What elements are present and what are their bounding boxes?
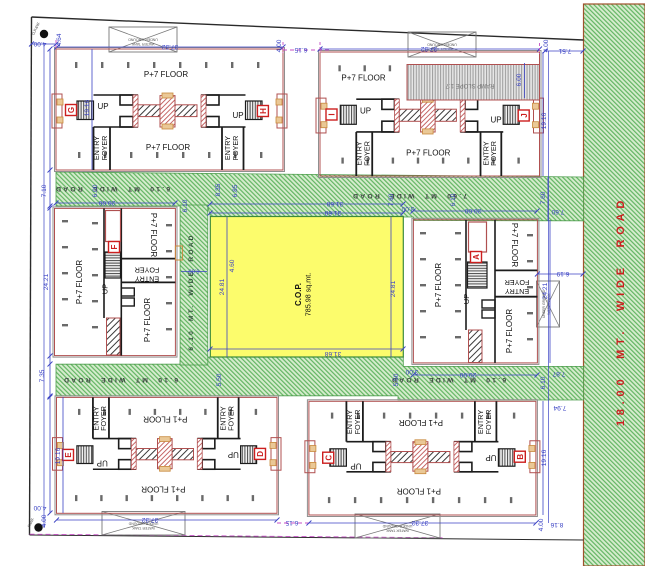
svg-text:6.10 MT WIDE ROAD: 6.10 MT WIDE ROAD: [62, 376, 178, 383]
svg-text:19.16: 19.16: [55, 447, 62, 464]
svg-text:FOYER: FOYER: [231, 136, 240, 161]
svg-text:UP: UP: [97, 459, 108, 468]
svg-text:37.32: 37.32: [161, 43, 178, 50]
svg-text:WATER TANK: WATER TANK: [385, 529, 408, 533]
svg-text:24.21: 24.21: [43, 273, 50, 290]
svg-text:31.68: 31.68: [326, 200, 343, 207]
svg-text:P+1 FLOOR: P+1 FLOOR: [399, 418, 443, 427]
svg-text:4.60: 4.60: [229, 259, 236, 272]
svg-text:C: C: [324, 455, 333, 461]
svg-text:8.35: 8.35: [215, 183, 222, 196]
svg-text:ENTRY: ENTRY: [135, 275, 159, 284]
svg-text:P+7 FLOOR: P+7 FLOOR: [406, 149, 450, 158]
svg-text:785.98 sq.mt.: 785.98 sq.mt.: [304, 273, 313, 317]
svg-text:J: J: [520, 113, 529, 117]
svg-text:37.32: 37.32: [141, 516, 158, 523]
svg-text:6.00: 6.00: [92, 184, 99, 197]
svg-text:P+7 FLOOR: P+7 FLOOR: [143, 298, 152, 342]
svg-text:7.10: 7.10: [41, 184, 48, 197]
svg-text:P+7 FLOOR: P+7 FLOOR: [434, 263, 443, 307]
svg-text:WATER TANK: WATER TANK: [131, 526, 154, 530]
svg-text:18.00 MT. WIDE ROAD: 18.00 MT. WIDE ROAD: [615, 196, 627, 426]
svg-text:FOYER: FOYER: [135, 266, 160, 275]
svg-text:FOYER: FOYER: [100, 136, 109, 161]
svg-text:20.00: 20.00: [459, 371, 476, 378]
svg-text:P+7 FLOOR: P+7 FLOOR: [144, 70, 188, 79]
svg-text:4.00: 4.00: [33, 504, 46, 511]
svg-text:UP: UP: [360, 106, 371, 115]
svg-text:P+7 FLOOR: P+7 FLOOR: [341, 74, 385, 83]
svg-text:UNDER GROUND: UNDER GROUND: [128, 38, 158, 42]
svg-text:6.85: 6.85: [232, 184, 239, 197]
svg-text:31.68: 31.68: [324, 209, 341, 216]
svg-text:D: D: [256, 451, 265, 457]
svg-text:4.00: 4.00: [276, 39, 283, 52]
svg-text:8.16: 8.16: [550, 521, 563, 528]
svg-text:4.64: 4.64: [56, 33, 63, 46]
svg-text:6.15: 6.15: [294, 46, 307, 53]
svg-text:F: F: [110, 244, 119, 249]
svg-text:P+7 FLOOR: P+7 FLOOR: [510, 223, 519, 267]
svg-text:7.87: 7.87: [552, 370, 565, 377]
svg-text:24.21: 24.21: [542, 282, 549, 299]
svg-text:5.50: 5.50: [216, 373, 223, 386]
svg-text:UP: UP: [97, 102, 108, 111]
svg-text:UP: UP: [232, 111, 243, 120]
svg-text:6.00: 6.00: [516, 73, 523, 86]
svg-text:FOYER: FOYER: [489, 141, 498, 166]
svg-text:FOYER: FOYER: [99, 406, 108, 431]
svg-text:UP: UP: [490, 116, 501, 125]
svg-text:4.00: 4.00: [41, 514, 48, 527]
svg-text:B: B: [516, 454, 525, 460]
svg-text:FOYER: FOYER: [353, 410, 362, 435]
svg-text:FOYER: FOYER: [362, 141, 371, 166]
svg-text:19.16: 19.16: [84, 99, 91, 116]
svg-text:6.10: 6.10: [540, 376, 547, 389]
svg-text:7.60: 7.60: [388, 193, 395, 206]
svg-text:H: H: [259, 108, 268, 114]
svg-text:6.10 MT WIDE ROAD: 6.10 MT WIDE ROAD: [54, 185, 170, 192]
svg-text:UP: UP: [101, 284, 110, 294]
svg-text:FOYER: FOYER: [505, 278, 530, 287]
svg-text:G: G: [67, 107, 76, 113]
svg-text:WATER TANK: WATER TANK: [131, 42, 154, 46]
svg-text:P+1 FLOOR: P+1 FLOOR: [141, 484, 185, 493]
svg-text:37.32: 37.32: [420, 45, 437, 52]
svg-text:4.00: 4.00: [33, 40, 46, 47]
svg-text:19.16: 19.16: [541, 449, 548, 466]
svg-text:6.10: 6.10: [450, 193, 457, 206]
svg-text:6.10 MT WIDE ROAD: 6.10 MT WIDE ROAD: [390, 376, 506, 383]
svg-text:UP: UP: [350, 461, 361, 470]
svg-text:37.32: 37.32: [411, 519, 428, 526]
svg-text:I: I: [328, 113, 337, 115]
svg-text:FOYER: FOYER: [226, 406, 235, 431]
svg-text:5.50: 5.50: [393, 373, 400, 386]
svg-text:7.60: 7.60: [540, 191, 547, 204]
svg-text:FOYER: FOYER: [484, 410, 493, 435]
svg-text:E: E: [64, 452, 73, 458]
svg-text:24.81: 24.81: [219, 278, 226, 295]
svg-text:31.68: 31.68: [324, 350, 341, 357]
svg-text:P+7 FLOOR: P+7 FLOOR: [146, 143, 190, 152]
svg-text:7.60: 7.60: [551, 208, 564, 215]
svg-text:7.51: 7.51: [558, 47, 571, 54]
svg-text:UP: UP: [462, 294, 471, 304]
svg-text:6.10: 6.10: [182, 199, 189, 212]
svg-text:P+1 FLOOR: P+1 FLOOR: [143, 415, 187, 424]
svg-text:6.15: 6.15: [285, 519, 298, 526]
svg-text:P+7 FLOOR: P+7 FLOOR: [75, 260, 84, 304]
svg-text:20.00: 20.00: [464, 207, 481, 214]
svg-text:A: A: [472, 254, 481, 260]
svg-text:UNDER GROUND: UNDER GROUND: [382, 524, 412, 528]
svg-text:6.19: 6.19: [556, 270, 569, 277]
svg-text:3.00: 3.00: [405, 368, 418, 375]
svg-text:P+7 FLOOR: P+7 FLOOR: [505, 309, 514, 353]
svg-text:C.O.P.: C.O.P.: [294, 283, 303, 306]
svg-text:7.35: 7.35: [39, 369, 46, 382]
svg-text:20.00: 20.00: [98, 199, 115, 206]
svg-text:19.16: 19.16: [541, 112, 548, 129]
svg-text:ENTRY: ENTRY: [505, 287, 529, 296]
svg-text:6.00: 6.00: [188, 268, 199, 274]
svg-text:P+7 FLOOR: P+7 FLOOR: [149, 213, 158, 257]
svg-text:P+1 FLOOR: P+1 FLOOR: [397, 487, 441, 496]
svg-text:4.00: 4.00: [543, 39, 550, 52]
svg-text:UP: UP: [485, 453, 496, 462]
svg-text:RAMP SLOPE 1:7: RAMP SLOPE 1:7: [445, 82, 495, 88]
svg-text:7.94: 7.94: [553, 404, 566, 411]
svg-text:UP: UP: [228, 450, 239, 459]
svg-text:6.10 MT. WIDE ROAD: 6.10 MT. WIDE ROAD: [188, 233, 195, 350]
svg-text:4.00: 4.00: [538, 518, 545, 531]
